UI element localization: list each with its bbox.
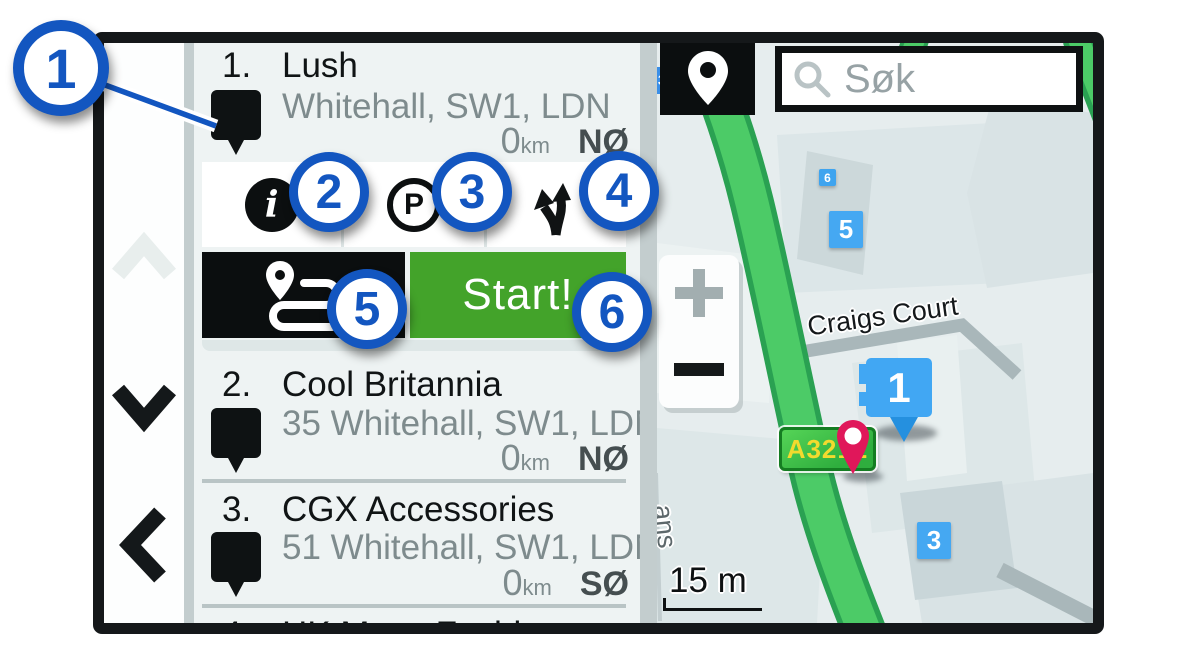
map-badge-5[interactable]: 5 [829, 211, 863, 248]
expanded-card-bottom [202, 340, 626, 351]
list-nav-column [104, 43, 184, 623]
poi-pin-icon [210, 89, 262, 157]
zoom-controls [659, 255, 739, 408]
map-badge-6[interactable]: 6 [819, 169, 836, 186]
result-3-title[interactable]: CGX Accessories [282, 490, 554, 530]
result-2-title[interactable]: Cool Britannia [282, 365, 502, 405]
callout-5: 5 [327, 269, 407, 349]
result-2-distance: 0km [501, 437, 550, 479]
marker-pointer [890, 417, 918, 442]
result-3-distance-row: 0km SØ [374, 562, 629, 604]
result-1-distance-row: 0km NØ [374, 120, 629, 162]
scroll-down-icon[interactable] [112, 380, 176, 436]
map-view[interactable]: Craigs Court ans 3 [657, 43, 1093, 623]
minus-icon [674, 363, 724, 376]
callout-4: 4 [579, 151, 659, 231]
route-fork-icon [528, 169, 584, 241]
result-4-index: 4. [222, 615, 251, 623]
poi-pin-icon [210, 407, 262, 475]
result-3-distance: 0km [503, 562, 552, 604]
result-2-distance-row: 0km NØ [374, 437, 629, 479]
poi-pin-icon [210, 531, 262, 599]
search-icon [792, 59, 832, 99]
list-separator [202, 479, 626, 483]
list-left-divider [184, 43, 194, 623]
marker-number: 1 [866, 358, 932, 417]
callout-2: 2 [289, 152, 369, 232]
callout-1: 1 [13, 20, 109, 116]
map-badge-3[interactable]: 3 [917, 522, 951, 559]
result-1-title[interactable]: Lush [282, 46, 358, 86]
plus-icon [675, 269, 723, 317]
result-1-index: 1. [222, 46, 251, 86]
result-3-direction: SØ [580, 565, 629, 604]
street-label-partial: ans [657, 503, 682, 550]
search-results-list[interactable]: 1. Lush Whitehall, SW1, LDN 0km NØ i P [194, 43, 640, 623]
map-scale-bar [663, 608, 762, 611]
result-3-index: 3. [222, 490, 251, 530]
result-4-title[interactable]: HK Mens Fashion [282, 615, 560, 623]
selected-result-marker[interactable]: 1 [866, 358, 932, 417]
result-1-distance: 0km [501, 120, 550, 162]
result-2-direction: NØ [578, 440, 629, 479]
destination-pin-icon[interactable] [836, 419, 870, 477]
zoom-in-button[interactable] [659, 255, 739, 332]
location-pin-icon [686, 49, 730, 109]
result-2-index: 2. [222, 365, 251, 405]
map-pin-button[interactable] [660, 43, 755, 115]
result-actions-row: i P [202, 162, 626, 247]
callout-6: 6 [572, 272, 652, 352]
search-box[interactable] [775, 46, 1083, 112]
map-scale-label: 15 m [669, 561, 747, 601]
scroll-up-icon[interactable] [112, 230, 176, 286]
list-separator [202, 604, 626, 608]
back-icon[interactable] [118, 505, 170, 585]
callout-3: 3 [432, 152, 512, 232]
zoom-out-button[interactable] [659, 332, 739, 409]
search-input[interactable] [842, 56, 1046, 103]
